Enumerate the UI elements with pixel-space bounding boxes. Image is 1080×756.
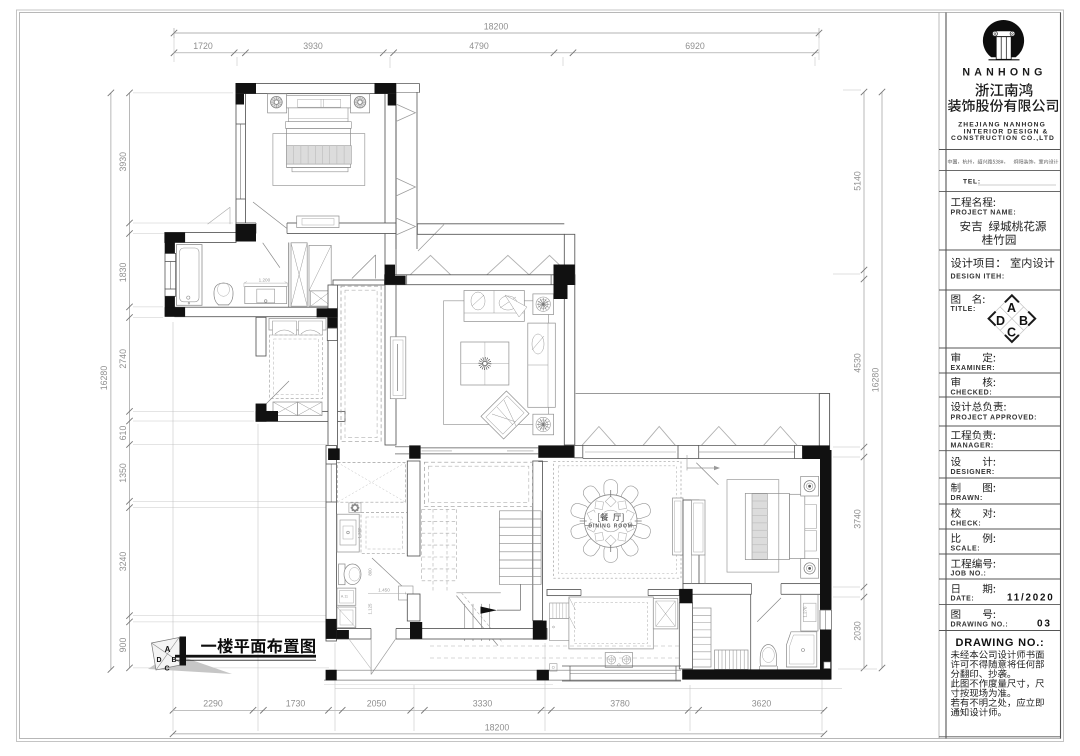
svg-text:DESIGNER:: DESIGNER: — [951, 469, 995, 476]
svg-text:DATE:: DATE: — [951, 596, 975, 603]
svg-text:1350: 1350 — [118, 463, 128, 483]
svg-text:2030: 2030 — [852, 621, 862, 641]
svg-text:EXAMINER:: EXAMINER: — [951, 365, 996, 372]
svg-text:D: D — [156, 657, 161, 664]
svg-text:3740: 3740 — [852, 509, 862, 529]
svg-text:JOB NO.:: JOB NO.: — [951, 571, 987, 578]
svg-text:2050: 2050 — [367, 699, 387, 709]
svg-text:+: + — [404, 591, 407, 597]
svg-text:B: B — [1019, 314, 1028, 328]
svg-text:A: A — [165, 645, 171, 654]
svg-text:CHECKED:: CHECKED: — [951, 390, 993, 397]
svg-text:DRAWING NO.:: DRAWING NO.: — [955, 637, 1044, 649]
svg-text:TITLE:: TITLE: — [951, 306, 976, 313]
svg-text:610: 610 — [118, 426, 128, 441]
svg-text:3620: 3620 — [752, 699, 772, 709]
svg-text:1.450: 1.450 — [378, 588, 390, 593]
svg-text:3780: 3780 — [610, 699, 630, 709]
svg-text:16280: 16280 — [870, 368, 880, 393]
svg-text:1830: 1830 — [118, 263, 128, 283]
svg-text:TEL:: TEL: — [963, 179, 981, 186]
svg-text:3330: 3330 — [473, 699, 493, 709]
svg-text:03: 03 — [1037, 619, 1052, 630]
svg-text:CONSTRUCTION CO.,LTD: CONSTRUCTION CO.,LTD — [951, 135, 1055, 142]
svg-text:DRAWING NO.:: DRAWING NO.: — [951, 622, 1009, 629]
svg-text:2290: 2290 — [203, 699, 223, 709]
svg-text:11/2020: 11/2020 — [1007, 593, 1054, 604]
svg-text:1.200: 1.200 — [357, 527, 362, 539]
svg-text:NANHONG: NANHONG — [962, 67, 1046, 79]
svg-text:1.200: 1.200 — [259, 277, 271, 282]
svg-text:. . .: . . . — [616, 649, 621, 653]
svg-text:1720: 1720 — [193, 41, 213, 51]
svg-text:6920: 6920 — [685, 41, 705, 51]
svg-text:D: D — [996, 314, 1005, 328]
svg-text:DESIGN ITEH:: DESIGN ITEH: — [951, 274, 1005, 281]
svg-text:3240: 3240 — [118, 552, 128, 572]
svg-text:A: A — [1007, 301, 1016, 315]
svg-text:1.125: 1.125 — [367, 603, 372, 615]
svg-text:1.270: 1.270 — [803, 606, 808, 618]
svg-text:2740: 2740 — [118, 349, 128, 369]
svg-text:3930: 3930 — [303, 41, 323, 51]
svg-text:3930: 3930 — [118, 152, 128, 172]
svg-text:18200: 18200 — [485, 722, 510, 732]
svg-text:4530: 4530 — [852, 353, 862, 373]
svg-text:16280: 16280 — [99, 366, 109, 391]
svg-text:1730: 1730 — [286, 699, 306, 709]
svg-text:DINING ROOM: DINING ROOM — [589, 523, 633, 529]
svg-text:DRAWN:: DRAWN: — [951, 495, 983, 502]
svg-text:4790: 4790 — [469, 41, 489, 51]
svg-text:CHECK:: CHECK: — [951, 521, 982, 528]
svg-text:C: C — [164, 666, 169, 673]
svg-text:18200: 18200 — [484, 22, 509, 32]
svg-text:MANAGER:: MANAGER: — [951, 443, 994, 450]
svg-text:C: C — [1007, 326, 1016, 340]
svg-text:900: 900 — [118, 638, 128, 653]
svg-text:5140: 5140 — [852, 171, 862, 191]
svg-text:PROJECT APPROVED:: PROJECT APPROVED: — [951, 415, 1038, 422]
svg-text:800: 800 — [367, 568, 372, 576]
svg-text:A.11: A.11 — [341, 595, 348, 599]
svg-text:SCALE:: SCALE: — [951, 546, 981, 553]
svg-text:PROJECT NAME:: PROJECT NAME: — [951, 210, 1017, 217]
